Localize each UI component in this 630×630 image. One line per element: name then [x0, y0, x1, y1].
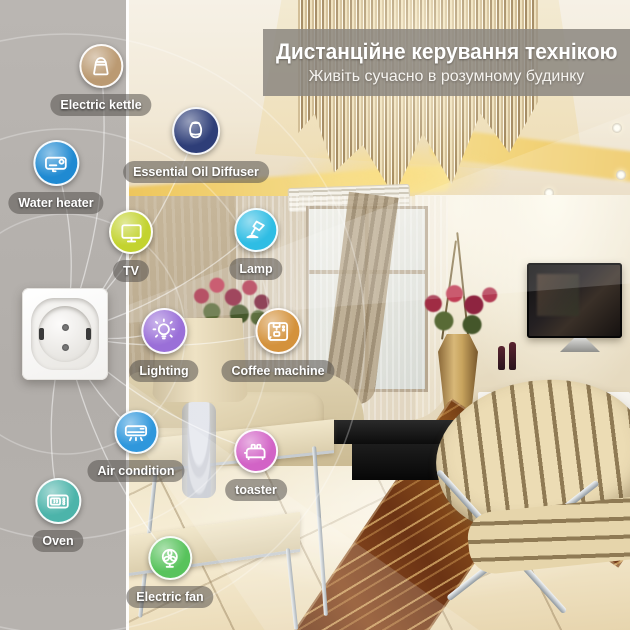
lamp-badge	[234, 208, 278, 252]
oil-diffuser-badge	[172, 107, 220, 155]
promo-image: Дистанційне керування технікою Живіть су…	[0, 0, 630, 630]
oil-diffuser-icon	[181, 117, 210, 146]
microwave-oven-icon	[43, 487, 72, 516]
electric-kettle-icon	[86, 52, 115, 81]
air-condition-badge	[114, 410, 158, 454]
plug-socket	[38, 306, 92, 362]
oil-diffuser-label: Essential Oil Diffuser	[123, 161, 269, 183]
lamp-label: Lamp	[229, 258, 282, 280]
electric-fan-badge	[148, 536, 192, 580]
lighting-label: Lighting	[129, 360, 198, 382]
coffee-machine-callout: Coffee machine	[221, 308, 334, 382]
water-heater-callout: Water heater	[8, 140, 103, 214]
tv-label: TV	[113, 260, 149, 282]
header-banner: Дистанційне керування технікою Живіть су…	[263, 29, 630, 96]
coffee-machine-label: Coffee machine	[221, 360, 334, 382]
air-conditioner-icon	[121, 418, 150, 447]
plug-hole	[62, 324, 69, 331]
toaster-callout: toaster	[225, 429, 287, 501]
plug-earth-clip	[86, 328, 91, 340]
electric-kettle-badge	[79, 44, 123, 88]
smart-plug-socket-icon	[22, 288, 108, 380]
coffee-machine-icon	[264, 317, 293, 346]
electric-kettle-callout: Electric kettle	[50, 44, 151, 116]
toaster-label: toaster	[225, 479, 287, 501]
water-heater-icon	[41, 149, 70, 178]
toaster-icon	[242, 437, 271, 466]
page-title: Дистанційне керування технікою	[276, 39, 617, 65]
figurine	[498, 346, 505, 370]
tv-badge	[109, 210, 153, 254]
lighting-badge	[141, 308, 187, 354]
oven-label: Oven	[32, 530, 83, 552]
plug-earth-clip	[39, 328, 44, 340]
toaster-badge	[234, 429, 278, 473]
electric-fan-callout: Electric fan	[126, 536, 213, 608]
oven-callout: Oven	[32, 478, 83, 552]
electric-fan-label: Electric fan	[126, 586, 213, 608]
lamp-callout: Lamp	[229, 208, 282, 280]
air-condition-callout: Air condition	[87, 410, 184, 482]
air-condition-label: Air condition	[87, 460, 184, 482]
lighting-callout: Lighting	[129, 308, 198, 382]
tv-icon	[117, 218, 146, 247]
oil-diffuser-callout: Essential Oil Diffuser	[123, 107, 269, 183]
oven-badge	[35, 478, 81, 524]
tv-callout: TV	[109, 210, 153, 282]
page-subtitle: Живіть сучасно в розумному будинку	[309, 68, 585, 86]
water-heater-label: Water heater	[8, 192, 103, 214]
coffee-machine-badge	[255, 308, 301, 354]
light-bulb-icon	[149, 317, 178, 346]
desk-lamp-icon	[242, 216, 271, 245]
electric-fan-icon	[155, 544, 184, 573]
plug-hole	[62, 344, 69, 351]
figurine	[509, 342, 516, 370]
water-heater-badge	[33, 140, 79, 186]
